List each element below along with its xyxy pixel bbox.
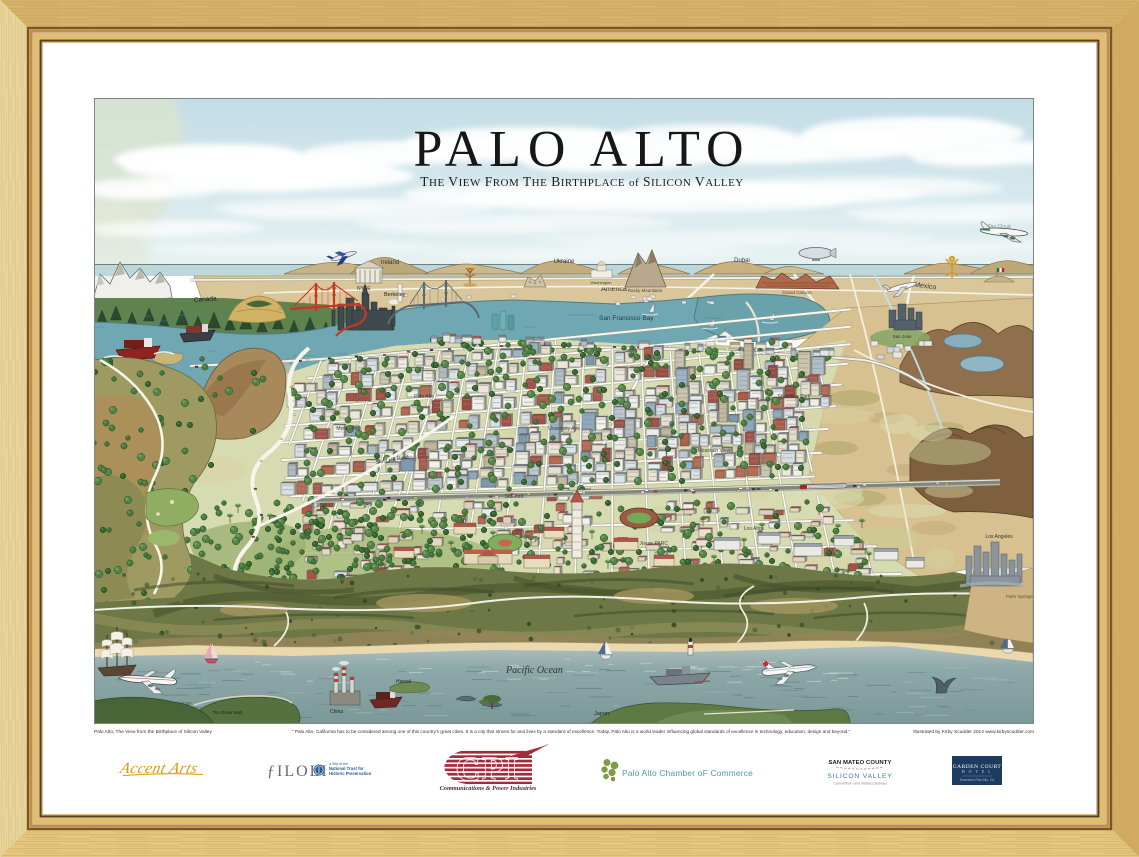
svg-text:SAN MATEO COUNTY: SAN MATEO COUNTY bbox=[828, 760, 891, 766]
svg-text:“ Palo Alto, California has to: “ Palo Alto, California has to be consid… bbox=[292, 729, 850, 734]
svg-text:Hawaii: Hawaii bbox=[396, 679, 411, 685]
svg-text:THE VIEW FROM THE BIRTHPLACE o: THE VIEW FROM THE BIRTHPLACE of SILICON … bbox=[420, 174, 743, 189]
svg-text:The Great Wall: The Great Wall bbox=[212, 710, 242, 715]
svg-text:Shoreline Park: Shoreline Park bbox=[778, 394, 811, 400]
svg-text:Los Altos: Los Altos bbox=[744, 526, 765, 532]
svg-text:Illustrated by Kirby Scudder 2: Illustrated by Kirby Scudder 2014 www.ki… bbox=[913, 729, 1034, 735]
svg-text:China: China bbox=[330, 709, 343, 715]
svg-text:Communications & Power Industr: Communications & Power Industries bbox=[440, 785, 537, 792]
svg-text:Palo Alto, The View from the B: Palo Alto, The View from the Birthplace … bbox=[94, 729, 212, 735]
svg-text:Stanford: Stanford bbox=[505, 494, 524, 500]
svg-text:Menlo Park: Menlo Park bbox=[336, 426, 362, 432]
svg-text:Downtown Palo Alto, CA: Downtown Palo Alto, CA bbox=[960, 778, 995, 782]
svg-text:Convention and Visitors Bureau: Convention and Visitors Bureau bbox=[833, 782, 886, 786]
svg-text:H O T E L: H O T E L bbox=[962, 769, 992, 774]
svg-text:University Ave: University Ave bbox=[548, 426, 580, 432]
svg-text:Ireland: Ireland bbox=[381, 260, 399, 266]
svg-text:Japan: Japan bbox=[594, 711, 609, 717]
svg-text:NYSE: NYSE bbox=[357, 286, 371, 292]
svg-text:Ukraine: Ukraine bbox=[554, 259, 575, 265]
svg-text:Palo Alto Chamber oF Commerce: Palo Alto Chamber oF Commerce bbox=[622, 768, 753, 778]
svg-text:Pacific Ocean: Pacific Ocean bbox=[505, 665, 563, 676]
svg-text:San Francisco Bay: San Francisco Bay bbox=[599, 315, 654, 322]
svg-text:Rocky Mountains: Rocky Mountains bbox=[628, 288, 663, 293]
svg-text:Berkeley: Berkeley bbox=[384, 292, 406, 298]
svg-text:Palm Springs: Palm Springs bbox=[1006, 594, 1034, 599]
svg-text:PALO ALTO: PALO ALTO bbox=[413, 121, 750, 178]
svg-text:Xerox PARC: Xerox PARC bbox=[640, 541, 668, 547]
svg-text:Historic Preservation: Historic Preservation bbox=[329, 771, 372, 776]
svg-text:CPI: CPI bbox=[456, 751, 521, 788]
svg-text:SILICON VALLEY: SILICON VALLEY bbox=[827, 773, 892, 780]
svg-text:Los Angeles: Los Angeles bbox=[985, 534, 1013, 540]
svg-text:Mountain View: Mountain View bbox=[698, 448, 731, 454]
svg-text:San Jose: San Jose bbox=[893, 334, 912, 339]
svg-text:Washington: Washington bbox=[591, 280, 612, 285]
svg-text:Grand Canyon: Grand Canyon bbox=[782, 290, 812, 295]
svg-text:Dubai: Dubai bbox=[734, 258, 750, 264]
svg-text:Palo Alto: Palo Alto bbox=[414, 394, 434, 400]
